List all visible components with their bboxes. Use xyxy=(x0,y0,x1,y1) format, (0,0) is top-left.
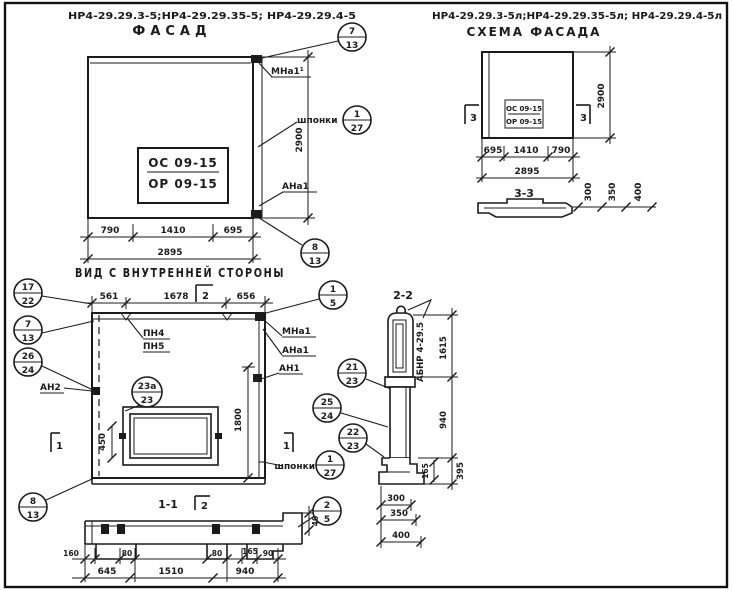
svg-text:2: 2 xyxy=(324,501,330,511)
schema-dim-1410: 1410 xyxy=(513,146,538,156)
dim-656: 656 xyxy=(237,292,256,302)
facade-title: ФАСАД xyxy=(132,24,211,39)
dim-450: 450 xyxy=(98,433,108,451)
inner-top-dims: 561 1678 656 xyxy=(84,292,273,313)
dim-165-s22: 165 xyxy=(421,463,430,479)
schema-bottom-dims: 695 1410 790 2895 xyxy=(476,138,580,183)
dim-300-s22: 300 xyxy=(387,494,405,504)
svg-text:ПН4: ПН4 xyxy=(143,329,164,339)
schema-title: СХЕМА ФАСАДА xyxy=(467,25,602,39)
s11-dims-row2: 645 1510 940 xyxy=(72,567,286,583)
section-marker-1-left: 1 xyxy=(51,433,63,452)
dim-695: 695 xyxy=(224,226,243,236)
dim-1800: 1800 xyxy=(234,408,244,432)
svg-text:24: 24 xyxy=(22,366,35,376)
schema-view: НР4-29.29.3-5л;НР4-29.29.35-5л; НР4-29.2… xyxy=(432,11,722,183)
svg-text:23: 23 xyxy=(346,377,359,387)
dim-40: 40 xyxy=(311,516,320,526)
stamp-line2: ОР 09-15 xyxy=(148,177,218,191)
section-3-3: 3-3 300 350 400 xyxy=(478,183,657,217)
svg-text:АНа1: АНа1 xyxy=(282,182,309,192)
schema-dim-695: 695 xyxy=(484,146,503,156)
svg-text:7: 7 xyxy=(25,320,31,330)
section-1-1: 1-1 2 xyxy=(63,496,320,583)
svg-text:27: 27 xyxy=(324,469,337,479)
svg-text:3: 3 xyxy=(580,113,587,124)
section-marker-3-right: 3 xyxy=(576,105,590,124)
dim-790: 790 xyxy=(101,226,120,236)
svg-text:АН1: АН1 xyxy=(279,364,300,374)
anchor-mark-top xyxy=(251,55,262,63)
window-opening xyxy=(119,407,222,465)
svg-text:23: 23 xyxy=(141,396,154,406)
callout-25-24: 25 24 xyxy=(313,394,341,422)
label-ana1-inner: АНа1 xyxy=(282,346,316,356)
facade-bottom-dims: 790 1410 695 2895 xyxy=(80,218,261,264)
technical-drawing: НР4-29.29.3-5;НР4-29.29.35-5; НР4-29.29.… xyxy=(0,0,732,590)
svg-text:5: 5 xyxy=(330,299,336,309)
label-mna1-sup: МНа1¹ xyxy=(271,67,311,77)
svg-text:7: 7 xyxy=(349,27,355,37)
svg-text:1: 1 xyxy=(56,441,63,452)
section-marker-2-top: 2 xyxy=(196,285,213,302)
callout-1-27-facade: 1 27 xyxy=(343,106,371,134)
svg-text:8: 8 xyxy=(30,497,36,507)
svg-text:8: 8 xyxy=(312,243,318,253)
svg-text:1: 1 xyxy=(327,455,333,465)
label-an2: АН2 xyxy=(40,383,64,393)
svg-text:1: 1 xyxy=(354,110,360,120)
section-2-2-title: 2-2 xyxy=(393,289,413,302)
schema-edge-rib xyxy=(482,52,489,138)
dim-350-s22: 350 xyxy=(390,509,408,519)
svg-text:22: 22 xyxy=(22,297,35,307)
schema-stamp: ОС 09-15 ОР 09-15 xyxy=(505,100,543,128)
stamp-line1: ОС 09-15 xyxy=(148,156,218,170)
dim-80a: 80 xyxy=(122,549,132,558)
callout-17-22: 17 22 xyxy=(14,279,42,307)
schema-dim-2900: 2900 xyxy=(597,83,607,108)
callout-1-27-inner: 1 27 xyxy=(316,451,344,479)
label-an1: АН1 xyxy=(279,364,303,374)
label-abnr: АБНР 4-29.5 xyxy=(416,322,426,382)
drawing-sheet: НР4-29.29.3-5;НР4-29.29.35-5; НР4-29.29.… xyxy=(0,0,732,590)
svg-text:1: 1 xyxy=(330,285,336,295)
svg-text:26: 26 xyxy=(22,352,35,362)
callout-22-23: 22 23 xyxy=(339,424,367,452)
schema-dim-2895: 2895 xyxy=(514,167,539,177)
svg-text:13: 13 xyxy=(27,511,40,521)
section-marker-3-left: 3 xyxy=(465,105,479,124)
anchor-right-mid xyxy=(253,374,262,382)
svg-text:5: 5 xyxy=(324,515,330,525)
svg-text:21: 21 xyxy=(346,363,359,373)
dim-400-33: 400 xyxy=(634,183,644,202)
svg-text:13: 13 xyxy=(346,41,359,51)
svg-text:ОС 09-15: ОС 09-15 xyxy=(506,105,542,113)
label-mna1: МНа1 xyxy=(282,327,316,337)
callout-8-13-inner: 8 13 xyxy=(19,493,47,521)
section-1-1-title: 1-1 xyxy=(158,498,178,511)
label-shponki-inner: шпонки xyxy=(274,462,315,472)
svg-text:25: 25 xyxy=(321,398,334,408)
svg-text:АНа1: АНа1 xyxy=(282,346,309,356)
svg-text:22: 22 xyxy=(347,428,360,438)
inner-view: ВИД С ВНУТРЕННЕЙ СТОРОНЫ 5 xyxy=(14,265,391,527)
svg-text:МНа1: МНа1 xyxy=(282,327,311,337)
dim-2895: 2895 xyxy=(157,248,182,258)
section-3-3-dims: 300 350 400 xyxy=(573,183,657,212)
dim-1410: 1410 xyxy=(160,226,185,236)
dim-80b: 80 xyxy=(212,549,222,558)
section-3-3-title: 3-3 xyxy=(514,187,534,200)
facade-codes-title: НР4-29.29.3-5;НР4-29.29.35-5; НР4-29.29.… xyxy=(68,11,356,22)
svg-text:ОР 09-15: ОР 09-15 xyxy=(506,118,542,126)
dim-561: 561 xyxy=(100,292,119,302)
schema-dim-790: 790 xyxy=(552,146,571,156)
svg-text:3: 3 xyxy=(470,113,477,124)
anchor-top-right xyxy=(255,314,264,321)
dim-2900: 2900 xyxy=(295,127,305,152)
callout-23a-23: 23а 23 xyxy=(132,377,162,407)
dim-395: 395 xyxy=(456,462,466,480)
label-shponki-facade: шпонки xyxy=(297,116,338,126)
dim-645: 645 xyxy=(98,567,117,577)
facade-edge-rib xyxy=(253,57,262,218)
callout-21-23: 21 23 xyxy=(338,359,366,387)
dim-1800-group: 1800 xyxy=(234,363,255,483)
section-marker-1-right: 1 xyxy=(283,433,293,452)
section-2-2: 2-2 АБНР 4-29.5 1615 940 395 xyxy=(377,289,467,548)
svg-text:2: 2 xyxy=(202,291,209,302)
svg-text:ПН5: ПН5 xyxy=(143,342,164,352)
schema-codes-title: НР4-29.29.3-5л;НР4-29.29.35-5л; НР4-29.2… xyxy=(432,11,722,22)
dim-160: 160 xyxy=(63,549,79,558)
svg-text:24: 24 xyxy=(321,412,334,422)
svg-text:13: 13 xyxy=(309,257,322,267)
callout-7-13-inner: 7 13 xyxy=(14,316,42,344)
facade-stamp: ОС 09-15 ОР 09-15 xyxy=(138,148,228,203)
callout-26-24: 26 24 xyxy=(14,348,42,376)
dim-450-group: 450 xyxy=(98,422,117,463)
callout-1-5: 1 5 xyxy=(319,281,347,309)
svg-text:АН2: АН2 xyxy=(40,383,61,393)
label-pn4-pn5: ПН4 ПН5 xyxy=(143,329,170,352)
dim-1615: 1615 xyxy=(439,336,449,360)
dim-1510: 1510 xyxy=(158,567,183,577)
svg-text:1: 1 xyxy=(283,441,290,452)
dim-1678: 1678 xyxy=(163,292,188,302)
facade-view: НР4-29.29.3-5;НР4-29.29.35-5; НР4-29.29.… xyxy=(68,11,371,267)
svg-text:23а: 23а xyxy=(138,382,157,392)
callout-8-13-facade: 8 13 xyxy=(301,239,329,267)
dim-90: 90 xyxy=(263,549,273,558)
dim-165: 165 xyxy=(242,547,258,556)
dim-940-s22: 940 xyxy=(439,411,449,429)
dim-400-s22: 400 xyxy=(392,531,410,541)
dim-350-33: 350 xyxy=(608,183,618,202)
callout-7-13: 7 13 xyxy=(338,23,366,51)
section-marker-2-s11: 2 xyxy=(195,496,210,512)
svg-text:2: 2 xyxy=(201,501,208,512)
svg-text:МНа1¹: МНа1¹ xyxy=(271,67,304,77)
inner-view-title: ВИД С ВНУТРЕННЕЙ СТОРОНЫ xyxy=(75,265,285,280)
schema-height-dim: 2900 xyxy=(573,46,616,144)
dim-300-33: 300 xyxy=(584,183,594,202)
svg-text:13: 13 xyxy=(22,334,35,344)
svg-text:23: 23 xyxy=(347,442,360,452)
label-ana1-facade: АНа1 xyxy=(282,182,317,192)
anchor-left-mid xyxy=(92,387,100,395)
dim-940: 940 xyxy=(236,567,255,577)
s22-thickness-dims: 300 350 400 xyxy=(377,486,426,548)
svg-text:27: 27 xyxy=(351,124,364,134)
svg-text:17: 17 xyxy=(22,283,35,293)
